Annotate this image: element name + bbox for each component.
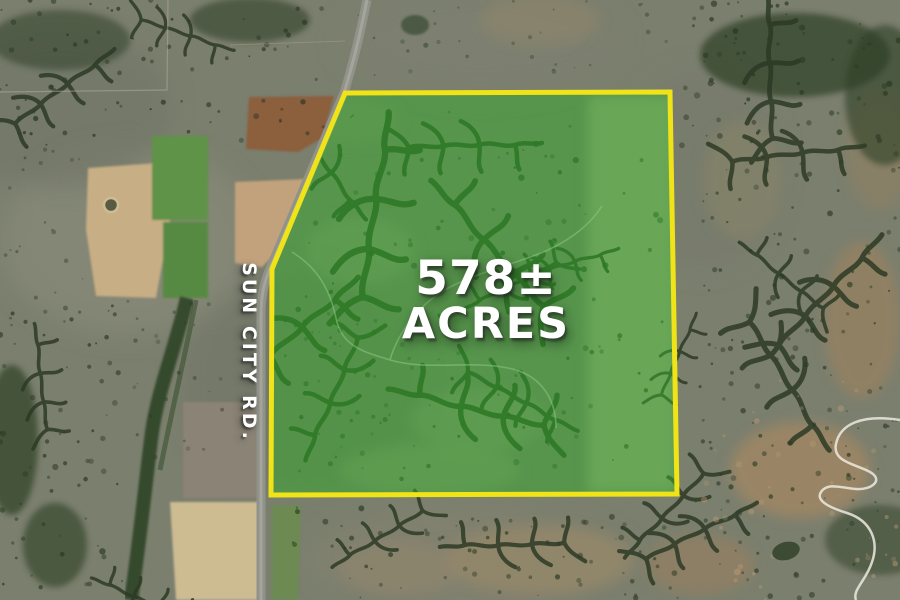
listing-map: 578± ACRES SUN CITY RD. (0, 0, 900, 600)
acreage-label: 578± ACRES (402, 255, 570, 347)
acreage-unit: ACRES (402, 303, 570, 347)
road-name-label: SUN CITY RD. (238, 262, 260, 442)
acreage-value: 578± (402, 255, 570, 303)
pond (104, 198, 118, 212)
